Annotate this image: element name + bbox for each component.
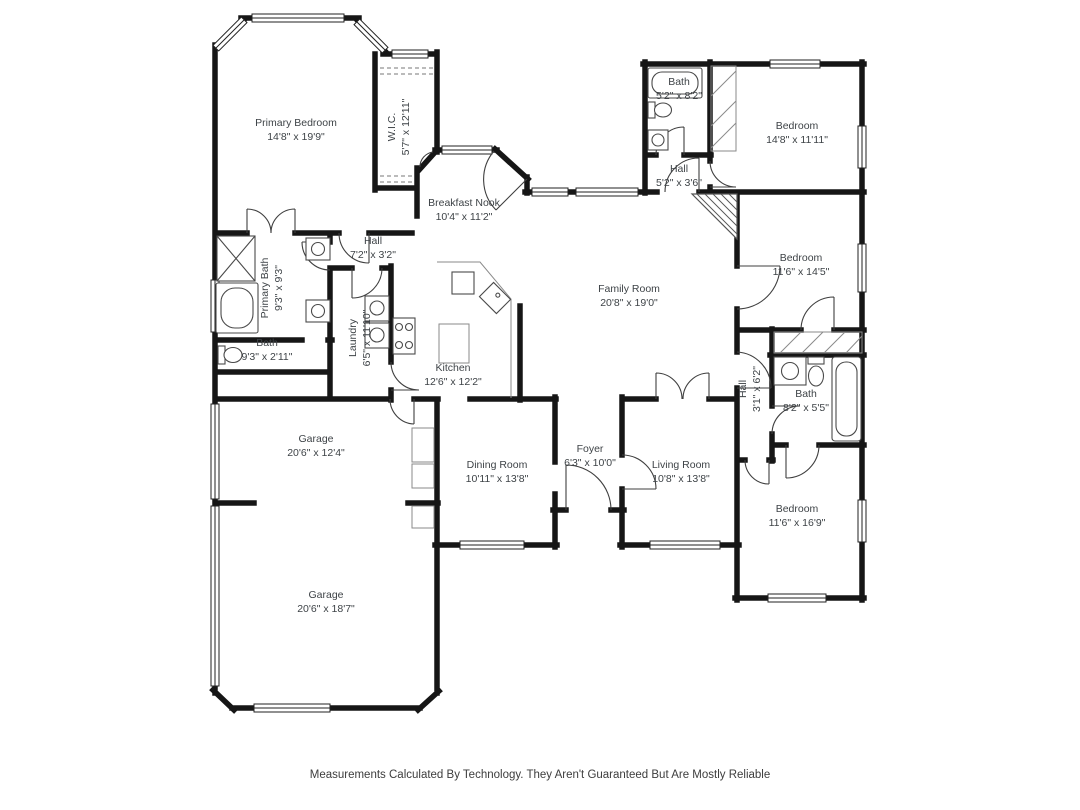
room-dims: 12'6" x 12'2"	[424, 376, 482, 390]
room-name: Foyer	[564, 443, 616, 457]
room-label-family-room: Family Room 20'8" x 19'0"	[598, 283, 660, 311]
room-label-bath-right: Bath 8'2" x 5'5"	[783, 388, 829, 416]
room-dims: 20'8" x 19'0"	[598, 297, 660, 311]
room-dims: 9'3" x 2'11"	[242, 351, 293, 365]
room-name: Hall	[737, 366, 751, 412]
toilet-icon	[808, 357, 824, 364]
fireplace-icon	[692, 194, 737, 239]
room-label-breakfast-nook: Breakfast Nook 10'4" x 11'2"	[428, 197, 500, 225]
room-name: W.I.C.	[386, 99, 400, 156]
room-dims: 9'3" x 9'3"	[273, 258, 287, 319]
garage-storage	[412, 464, 434, 488]
closet-hatch-right-middle	[774, 332, 862, 353]
room-name: Laundry	[347, 310, 361, 367]
room-name: Family Room	[598, 283, 660, 297]
room-name: Garage	[287, 433, 345, 447]
room-label-bedroom-right: Bedroom 11'6" x 14'5"	[773, 252, 830, 280]
room-label-hall-top-right: Hall 5'2" x 3'6"	[656, 163, 702, 191]
room-name: Kitchen	[424, 362, 482, 376]
prep-counter	[452, 272, 474, 294]
room-name: Hall	[350, 235, 396, 249]
room-dims: 6'5" x 11'10"	[361, 310, 375, 367]
room-label-laundry: Laundry 6'5" x 11'10"	[347, 310, 375, 367]
room-label-primary-bedroom: Primary Bedroom 14'8" x 19'9"	[255, 117, 337, 145]
kitchen-island	[439, 324, 469, 363]
room-label-bedroom-bottom-right: Bedroom 11'6" x 16'9"	[769, 503, 826, 531]
room-label-wic: W.I.C. 5'7" x 12'11"	[386, 99, 414, 156]
room-label-bath-top: Bath 5'2" x 8'2"	[656, 76, 702, 104]
room-name: Hall	[656, 163, 702, 177]
room-name: Bath	[783, 388, 829, 402]
disclaimer-text: Measurements Calculated By Technology. T…	[0, 769, 1080, 781]
room-dims: 11'6" x 16'9"	[769, 517, 826, 531]
room-dims: 11'6" x 14'5"	[773, 266, 830, 280]
room-label-foyer: Foyer 6'3" x 10'0"	[564, 443, 616, 471]
room-label-living-room: Living Room 10'8" x 13'8"	[652, 459, 710, 487]
room-dims: 5'7" x 12'11"	[400, 99, 414, 156]
room-name: Primary Bedroom	[255, 117, 337, 131]
room-dims: 20'6" x 12'4"	[287, 447, 345, 461]
room-label-primary-bath: Primary Bath 9'3" x 9'3"	[259, 258, 287, 319]
room-label-dining-room: Dining Room 10'11" x 13'8"	[466, 459, 529, 487]
floorplan-canvas: Primary Bedroom 14'8" x 19'9" W.I.C. 5'7…	[0, 0, 1080, 810]
room-dims: 14'8" x 19'9"	[255, 131, 337, 145]
room-name: Living Room	[652, 459, 710, 473]
closet-hatch-top-right	[711, 66, 736, 151]
room-dims: 10'8" x 13'8"	[652, 473, 710, 487]
floorplan-drawing	[0, 0, 1080, 810]
room-label-bath-left: Bath 9'3" x 2'11"	[242, 337, 293, 365]
stove-icon	[393, 318, 415, 354]
room-name: Bedroom	[769, 503, 826, 517]
room-name: Dining Room	[466, 459, 529, 473]
room-label-bedroom-top-right: Bedroom 14'8" x 11'11"	[766, 120, 828, 148]
garage-storage	[412, 428, 434, 462]
garage-storage	[412, 506, 434, 528]
room-dims: 3'1" x 6'2"	[751, 366, 765, 412]
room-dims: 7'2" x 3'2"	[350, 249, 396, 263]
room-label-kitchen: Kitchen 12'6" x 12'2"	[424, 362, 482, 390]
room-name: Bath	[242, 337, 293, 351]
room-dims: 5'2" x 8'2"	[656, 90, 702, 104]
room-name: Garage	[297, 589, 355, 603]
room-name: Breakfast Nook	[428, 197, 500, 211]
room-name: Bedroom	[773, 252, 830, 266]
room-dims: 20'6" x 18'7"	[297, 603, 355, 617]
room-dims: 14'8" x 11'11"	[766, 134, 828, 148]
kitchen-sink-icon	[479, 282, 510, 313]
room-name: Bath	[656, 76, 702, 90]
room-label-garage-upper: Garage 20'6" x 12'4"	[287, 433, 345, 461]
room-dims: 8'2" x 5'5"	[783, 402, 829, 416]
room-name: Bedroom	[766, 120, 828, 134]
room-name: Primary Bath	[259, 258, 273, 319]
room-label-hall-right: Hall 3'1" x 6'2"	[737, 366, 765, 412]
room-label-garage-lower: Garage 20'6" x 18'7"	[297, 589, 355, 617]
room-dims: 10'11" x 13'8"	[466, 473, 529, 487]
room-dims: 6'3" x 10'0"	[564, 457, 616, 471]
room-dims: 10'4" x 11'2"	[428, 211, 500, 225]
room-label-hall-left: Hall 7'2" x 3'2"	[350, 235, 396, 263]
room-dims: 5'2" x 3'6"	[656, 177, 702, 191]
